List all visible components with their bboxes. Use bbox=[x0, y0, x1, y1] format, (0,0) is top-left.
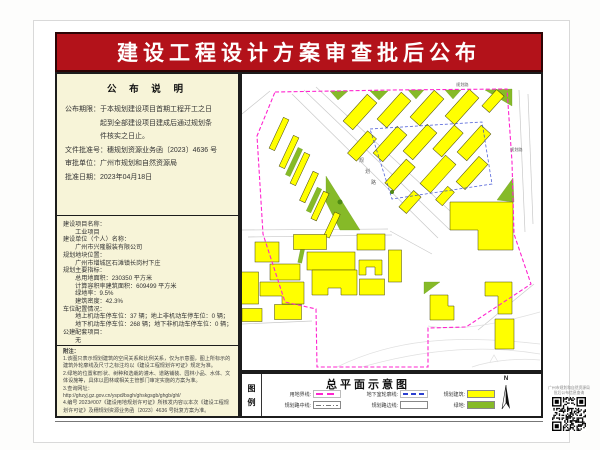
legend-swatch-blue-dash bbox=[400, 390, 428, 398]
text-line: 规划地块位置： bbox=[63, 252, 232, 260]
text-line: 件核实之日止。 bbox=[65, 130, 230, 144]
page-title-banner: 建设工程设计方案审查批后公布 bbox=[55, 32, 543, 72]
text-line: 批准日期：2023年04月18日 bbox=[65, 171, 230, 185]
publish-notes-heading: 公 布 说 明 bbox=[65, 81, 230, 95]
legend-key-char-bottom: 例 bbox=[248, 397, 256, 408]
legend-item-label: 规划路边线: bbox=[372, 402, 398, 409]
announcement-panel: 公 布 说 明 公布期限：于本规划建设项目首期工程开工之日 起到全部建设项目建成… bbox=[55, 72, 240, 418]
text-line: 公布期限：于本规划建设项目首期工程开工之日 bbox=[65, 103, 230, 117]
legend-item: 规划路边线: bbox=[344, 401, 428, 409]
legend-item: 规划路中线: bbox=[267, 401, 341, 409]
text-line: 建设单位（个人）名称： bbox=[63, 236, 232, 244]
text-line: 地下机动车停车位：268 辆；地下非机动车停车位：0 辆； bbox=[63, 321, 232, 329]
text-line: 绿地率：9.5% bbox=[63, 290, 232, 298]
svg-text:规划路: 规划路 bbox=[456, 81, 469, 88]
announcement-page: 建设工程设计方案审查批后公布 公 布 说 明 公布期限：于本规划建设项目首期工程… bbox=[0, 0, 600, 450]
svg-text:规划路: 规划路 bbox=[510, 146, 523, 153]
qr-code bbox=[552, 397, 586, 431]
text-line: 规划主要指标： bbox=[63, 267, 232, 275]
project-info-section: 建设项目名称： 工业项目建设单位（个人）名称： 广州市兴隆服装有限公司规划地块位… bbox=[57, 215, 238, 345]
notes-section: 附注： 1.该图只表示规划建筑的空间关系和比例关系，仅为示意图，图上所标示的建筑… bbox=[57, 345, 238, 416]
svg-text:路: 路 bbox=[371, 179, 376, 186]
legend-swatch-white bbox=[400, 401, 428, 409]
svg-text:划: 划 bbox=[365, 168, 370, 175]
legend-key-char-top: 图 bbox=[248, 383, 256, 394]
project-info-lines: 建设项目名称： 工业项目建设单位（个人）名称： 广州市兴隆服装有限公司规划地块位… bbox=[63, 221, 232, 344]
publish-notes-lines: 公布期限：于本规划建设项目首期工程开工之日 起到全部建设项目建成后通过规划条 件… bbox=[65, 103, 230, 184]
text-line: 起到全部建设项目建成后通过规划条 bbox=[65, 117, 230, 131]
north-arrow: N bbox=[495, 376, 517, 416]
legend-swatch-yellow bbox=[467, 390, 495, 398]
publish-notes-section: 公 布 说 明 公布期限：于本规划建设项目首期工程开工之日 起到全部建设项目建成… bbox=[57, 74, 238, 215]
text-line: 总用地面积：230350 平方米 bbox=[63, 275, 232, 283]
text-line: 2.绿地的位置和形状、树种和选栽的灌木、道路铺装、园林小品、水体、文体设施等，具… bbox=[63, 371, 232, 386]
text-line: 3.查询网址： bbox=[63, 386, 232, 393]
site-plan-canvas: 规划路规划路规划路 bbox=[242, 74, 541, 370]
text-line: 建筑密度：42.3% bbox=[63, 298, 232, 306]
text-line: 广州市兴隆服装有限公司 bbox=[63, 244, 232, 252]
legend-item-label: 规划建筑: bbox=[444, 391, 465, 398]
text-line: 地上机动车停车位：37 辆；地上非机动车停车位：0 辆； bbox=[63, 313, 232, 321]
notes-lines: 1.该图只表示规划建筑的空间关系和比例关系，仅为示意图，图上所标示的建筑外轮廓线… bbox=[63, 356, 232, 415]
legend-item: 用地界线: bbox=[267, 390, 341, 398]
legend-item-label: 地下室轮廓线: bbox=[367, 391, 398, 398]
legend-swatch-magenta-dash bbox=[313, 390, 341, 398]
legend-item-label: 规划路中线: bbox=[285, 402, 311, 409]
notes-heading: 附注： bbox=[63, 349, 232, 356]
text-line: 1.该图只表示规划建筑的空间关系和比例关系，仅为示意图，图上所标示的建筑外轮廓线… bbox=[63, 356, 232, 371]
legend-swatch-green bbox=[467, 401, 495, 409]
text-line: 建设项目名称： bbox=[63, 221, 232, 229]
text-line: 公建配套项目： bbox=[63, 329, 232, 337]
bottom-rule bbox=[55, 421, 543, 422]
qr-caption-line2: 批后公布信息查询 bbox=[548, 391, 590, 396]
buildings-layer bbox=[242, 89, 514, 349]
text-line: 无 bbox=[63, 337, 232, 345]
legend-key-label: 图 例 bbox=[242, 374, 262, 416]
legend-item-label: 用地界线: bbox=[290, 391, 311, 398]
legend-strip: 图 例 总平面示意图 用地界线:地下室轮廓线:规划建筑:规划路中线:规划路边线:… bbox=[240, 372, 543, 418]
text-line: 审批单位：广州市规划和自然资源局 bbox=[65, 157, 230, 171]
qr-caption-line1: 广州市规划和自然资源局 bbox=[548, 386, 590, 391]
legend-items: 用地界线:地下室轮廓线:规划建筑:规划路中线:规划路边线:绿地: bbox=[267, 390, 495, 409]
text-line: 4.编号 2023#007《建设用地规划许可证》所核发内容以本次《建设工程规划许… bbox=[63, 400, 232, 415]
qr-block: 广州市规划和自然资源局 批后公布信息查询 bbox=[548, 386, 590, 436]
text-line: 文件批准号：穗规划资源业务函〔2023〕4636 号 bbox=[65, 144, 230, 158]
legend-item: 绿地: bbox=[431, 401, 495, 409]
legend-item: 地下室轮廓线: bbox=[344, 390, 428, 398]
north-label: N bbox=[495, 376, 517, 383]
legend-item-label: 绿地: bbox=[454, 402, 465, 409]
legend-swatch-centerline bbox=[313, 401, 341, 409]
svg-text:规: 规 bbox=[359, 157, 364, 164]
north-needle-icon bbox=[496, 383, 516, 413]
site-plan-map: 规划路规划路规划路 bbox=[240, 72, 543, 372]
page-title: 建设工程设计方案审查批后公布 bbox=[117, 37, 481, 67]
legend-item: 规划建筑: bbox=[431, 390, 495, 398]
